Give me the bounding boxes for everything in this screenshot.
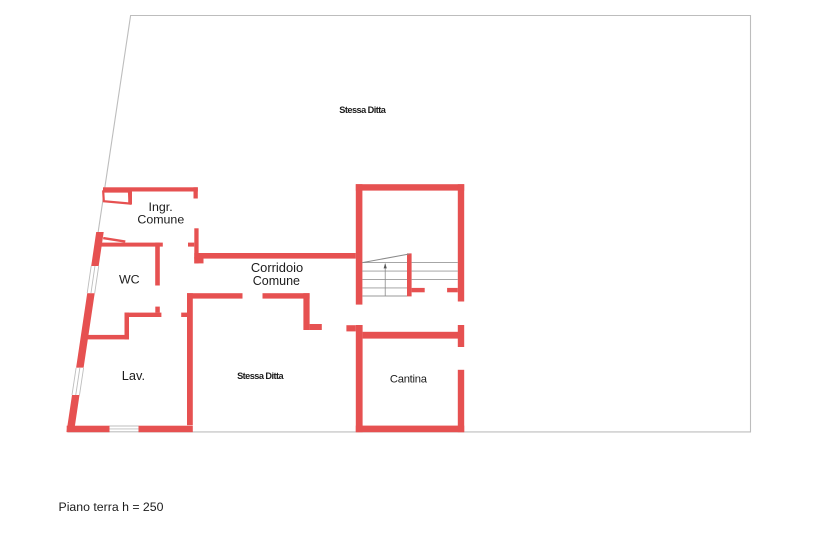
svg-text:Comune: Comune bbox=[137, 213, 184, 227]
svg-text:Cantina: Cantina bbox=[390, 373, 428, 385]
svg-text:Stessa Ditta: Stessa Ditta bbox=[237, 371, 284, 381]
svg-text:Corridoio: Corridoio bbox=[251, 260, 303, 275]
svg-text:Piano terra h = 250: Piano terra h = 250 bbox=[59, 500, 164, 514]
svg-text:Comune: Comune bbox=[253, 274, 300, 288]
svg-text:Lav.: Lav. bbox=[122, 368, 145, 383]
svg-text:Stessa Ditta: Stessa Ditta bbox=[339, 105, 386, 115]
svg-text:WC: WC bbox=[119, 273, 140, 287]
